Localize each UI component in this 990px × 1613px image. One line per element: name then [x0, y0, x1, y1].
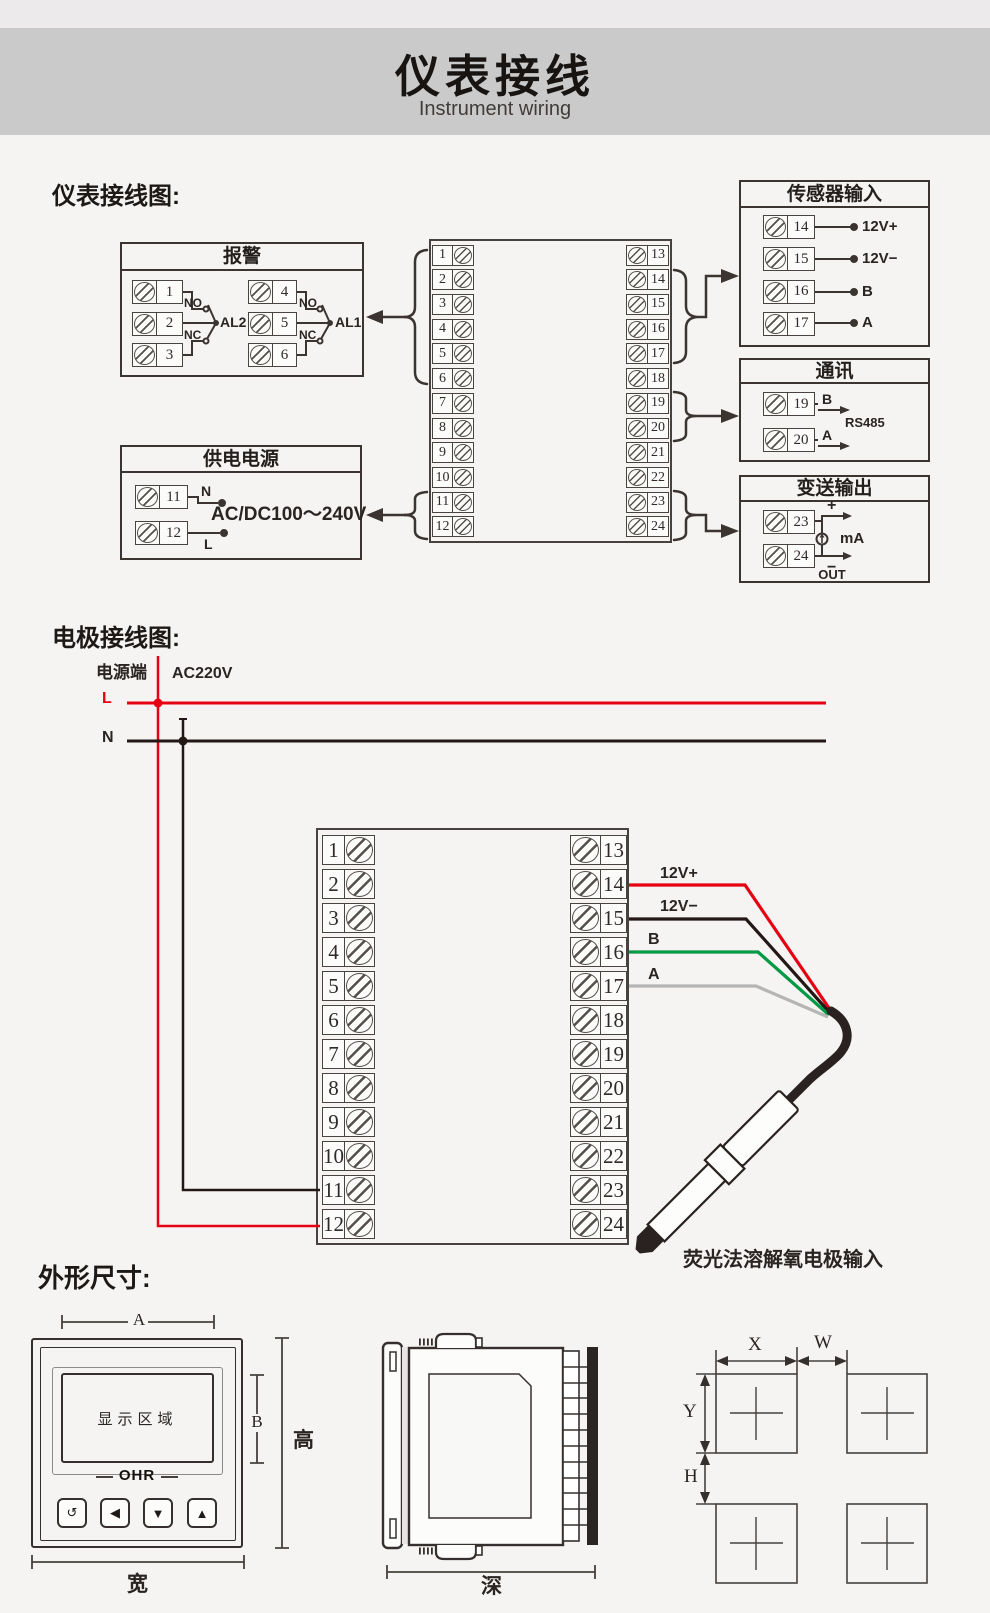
- probe-cable: [789, 1011, 847, 1100]
- wire-a-label: A: [648, 967, 660, 984]
- live-label: L: [102, 691, 112, 708]
- arrow-to-power: [366, 508, 383, 522]
- brace-11-12: [404, 492, 427, 539]
- al2-label: AL2: [220, 315, 246, 330]
- terminal-strip: [587, 1347, 598, 1545]
- wire-b-label: B: [648, 932, 660, 949]
- dim-b-label: B: [250, 1413, 264, 1431]
- terminal-braces: [404, 250, 697, 540]
- arrow-to-sensor: [721, 269, 739, 283]
- output-unit-label: mA: [840, 531, 864, 547]
- side-view: [383, 1334, 598, 1559]
- power-neutral-label: N: [201, 484, 211, 499]
- dim-a-label: A: [130, 1311, 148, 1329]
- neutral-label: N: [102, 730, 114, 747]
- dim-depth-label: 深: [481, 1576, 502, 1598]
- probe-caption: 荧光法溶解氧电极输入: [683, 1250, 883, 1271]
- dim-x-label: X: [748, 1335, 762, 1355]
- mounting-clamp-top: [436, 1334, 476, 1348]
- crosshairs: [730, 1387, 914, 1570]
- nc-label-al2: NC: [184, 329, 201, 342]
- wire-a: [629, 986, 828, 1017]
- sensor-b-label: B: [862, 284, 873, 300]
- dim-w-label: W: [814, 1333, 832, 1353]
- dim-h-label: H: [684, 1467, 698, 1487]
- power-live-label: L: [204, 537, 213, 552]
- oxygen-probe: [626, 1088, 801, 1263]
- arrow-to-comm: [721, 409, 739, 423]
- cutout-view: [696, 1347, 927, 1583]
- sensor-12v-minus-label: 12V−: [862, 251, 897, 267]
- mounting-clamp-bottom: [436, 1545, 476, 1559]
- brace-19-20: [674, 392, 697, 441]
- dim-width-label: 宽: [127, 1574, 148, 1596]
- wire-12v-minus-label: 12V−: [660, 899, 698, 916]
- no-label-al1: NO: [299, 297, 317, 310]
- wiring-overlay: [0, 0, 990, 1613]
- comm-b-label: B: [822, 392, 832, 407]
- neutral-rail: [127, 719, 826, 1190]
- comm-a-label: A: [822, 428, 832, 443]
- no-label-al2: NO: [184, 297, 202, 310]
- source-terminal-label: 电源端: [96, 664, 147, 682]
- manual-page: 仪表接线 Instrument wiring 仪表接线图: 电极接线图: 外形尺…: [0, 0, 990, 1613]
- brace-14-17: [674, 270, 697, 363]
- rs485-label: RS485: [845, 416, 885, 430]
- sensor-wires: [815, 224, 857, 326]
- ac220v-label: AC220V: [172, 666, 232, 683]
- al1-label: AL1: [335, 315, 361, 330]
- output-plus-label: +: [827, 498, 836, 515]
- arrow-to-output: [721, 524, 739, 538]
- arrow-to-alarm: [366, 310, 383, 324]
- wire-12v-plus-label: 12V+: [660, 866, 698, 883]
- sensor-12v-plus-label: 12V+: [862, 219, 897, 235]
- dim-y-label: Y: [683, 1402, 697, 1422]
- brace-1-6: [404, 250, 427, 384]
- connection-arrows: [366, 269, 739, 538]
- output-out-label: OUT: [812, 568, 852, 582]
- power-voltage: AC/DC100～240V: [211, 505, 366, 525]
- brace-23-24: [674, 491, 697, 540]
- dim-height-label: 高: [293, 1430, 314, 1452]
- sensor-a-label: A: [862, 315, 873, 331]
- nc-label-al1: NC: [299, 329, 316, 342]
